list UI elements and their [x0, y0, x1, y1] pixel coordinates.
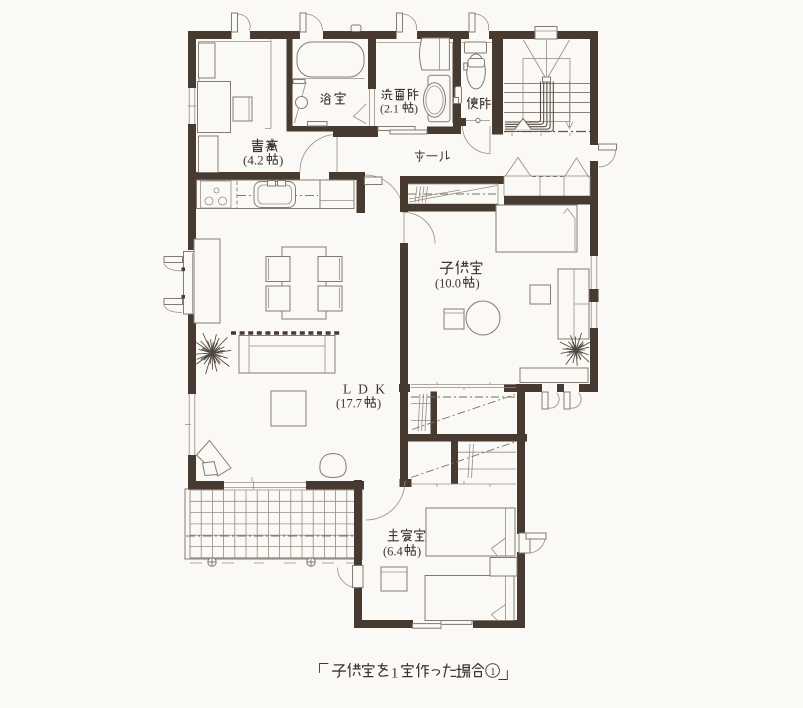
svg-text:): )	[279, 153, 283, 168]
svg-text:(4.2: (4.2	[243, 153, 264, 168]
svg-text:(2.1: (2.1	[380, 102, 399, 116]
svg-text:1: 1	[391, 666, 399, 682]
svg-text:(17.7: (17.7	[336, 397, 362, 411]
svg-text:L D K: L D K	[343, 382, 387, 397]
svg-text:): )	[417, 545, 421, 559]
svg-text:): )	[377, 397, 381, 411]
svg-text:(6.4: (6.4	[383, 545, 404, 559]
svg-text:(10.0: (10.0	[435, 277, 461, 291]
svg-text:): )	[414, 102, 418, 116]
svg-text:1: 1	[490, 667, 495, 678]
svg-text:): )	[476, 277, 480, 291]
